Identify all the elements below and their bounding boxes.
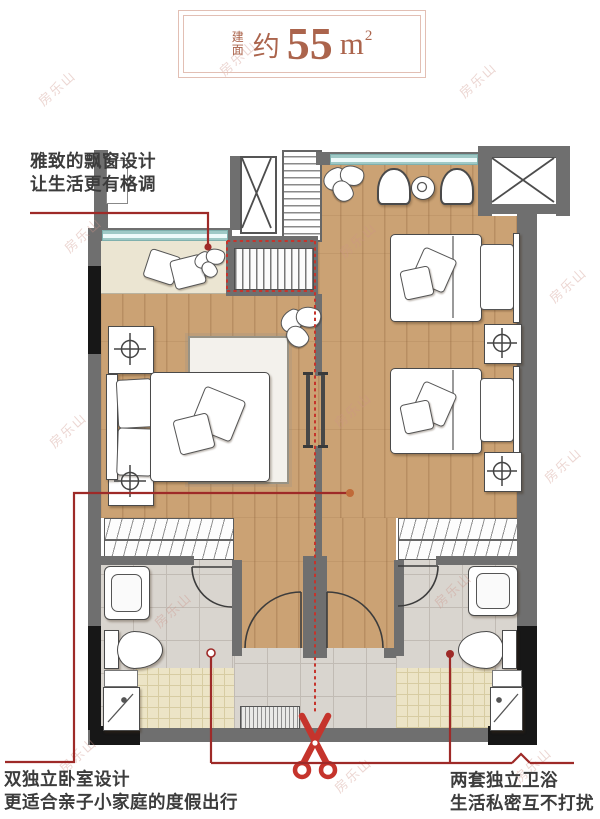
area-title-approx: 约 [253,25,280,64]
wall-black-left-lower [88,626,101,730]
sliding-door-leaf-right [321,374,325,446]
wall-exterior-bottom [88,728,537,742]
area-title-box: 建面 约 55 m2 [178,10,426,78]
floor-plan-page: 房乐山 房乐山 房乐山 房乐山 房乐山 房乐山 房乐山 房乐山 房乐山 房乐山 … [0,0,600,819]
annotation-bathrooms: 两套独立卫浴 生活私密互不打扰 [450,769,594,815]
wall-left-bath-right [232,560,242,656]
doormat [240,706,300,729]
watermark: 房乐山 [44,407,90,451]
annotation-bay-window-line2: 让生活更有格调 [30,173,156,196]
wardrobe-left [104,518,234,560]
twin-bed-1-cushion-2 [399,265,435,301]
sliding-door-cap [318,372,328,375]
nightstand-lamp-left-top [108,326,154,374]
area-title: 建面 约 55 m2 [183,15,421,73]
watermark: 房乐山 [329,752,375,796]
wall-entry-pier [303,556,327,658]
shelf-right [492,670,522,687]
floor-right-shower-zone [396,668,494,728]
twin-bed-2-headboard [513,366,520,454]
nightstand-lamp-right-bottom [484,452,522,492]
watermark: 房乐山 [544,262,590,306]
annotation-bedrooms-line1: 双独立卧室设计 [4,768,238,791]
plant-center [278,304,324,352]
twin-bed-1-pillow [480,244,514,310]
shelf-left [104,670,138,687]
twin-bed-2-pillow [480,378,514,442]
sliding-door-leaf-left [306,374,310,446]
annotation-bathrooms-line2: 生活私密互不打扰 [450,792,594,815]
toilet-right-tank [502,630,517,669]
annotation-bathrooms-line1: 两套独立卫浴 [450,769,594,792]
area-title-number: 55 [287,21,333,67]
watermark: 房乐山 [539,442,585,486]
sliding-door-cap [318,445,328,448]
pillow-master-1 [116,378,155,429]
wall-left-bath-top [100,556,194,565]
sliding-door-cap [303,372,313,375]
nightstand-lamp-right-top [484,324,522,364]
watermark: 房乐山 [33,65,79,109]
shaft-window-right [490,156,560,208]
area-title-prefix: 建面 [232,31,246,57]
annotation-bay-window-line1: 雅致的飘窗设计 [30,150,156,173]
sliding-door-cap [303,445,313,448]
shaft-window-top [240,156,277,234]
watermark: 房乐山 [454,57,500,101]
annotation-bedrooms-line2: 更适合亲子小家庭的度假出行 [4,791,238,814]
twin-bed-2-blanket-line [452,370,454,450]
annotation-bay-window: 雅致的飘窗设计 让生活更有格调 [30,150,156,196]
bay-flowers [192,246,232,286]
armchair-2 [440,168,474,205]
wall-right-bath-left [394,560,404,656]
twin-bed-2-cushion-2 [399,399,435,435]
plant-right-room [322,164,368,204]
wall-ext-mid [230,156,240,230]
area-title-unit: m2 [340,26,373,62]
bay-window-glass [102,230,228,241]
floor-left-shower-zone [136,668,234,730]
round-table [411,176,435,200]
annotation-bedrooms: 双独立卧室设计 更适合亲子小家庭的度假出行 [4,768,238,814]
louver-cabinet [234,248,314,290]
wall-entry-stub [384,648,396,658]
armchair-1 [377,168,411,205]
wall-right-bath-top [436,556,518,565]
wall-partition-lower [315,446,322,560]
shower-left [103,687,140,731]
wardrobe-right [398,518,519,560]
shower-right [490,687,523,731]
wall-black-left-upper [88,266,101,354]
sink-right-basin [476,573,510,609]
twin-bed-1-headboard [513,233,520,323]
pillow-master-2 [116,427,154,476]
sink-left-basin [111,574,142,612]
twin-bed-1-blanket-line [452,236,454,318]
